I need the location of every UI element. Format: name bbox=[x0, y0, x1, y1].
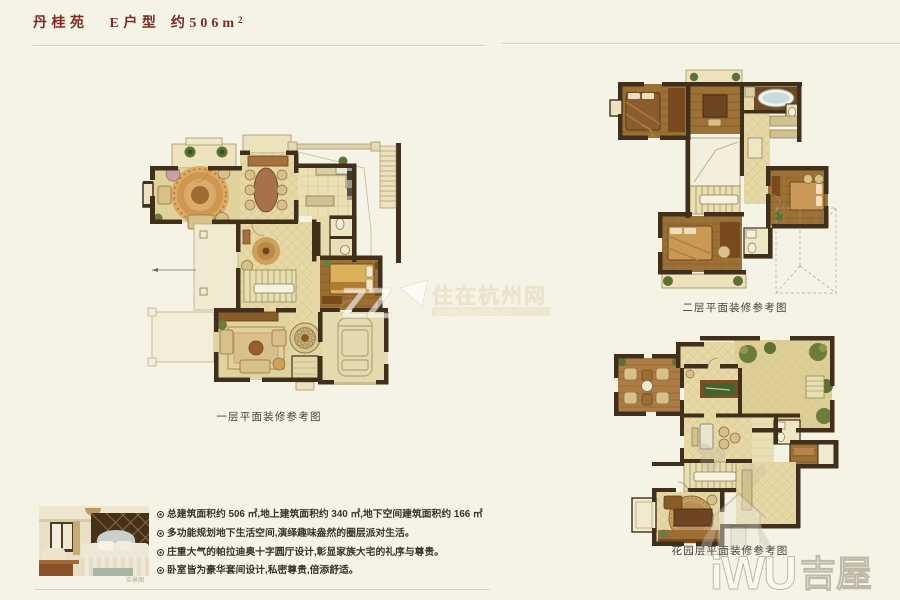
svg-text:吉屋: 吉屋 bbox=[800, 553, 872, 594]
svg-text:WWW.ZZHZ.COM.CN: WWW.ZZHZ.COM.CN bbox=[437, 308, 512, 317]
svg-text:ZZ: ZZ bbox=[341, 279, 392, 328]
svg-text:住在杭州网: 住在杭州网 bbox=[432, 284, 547, 308]
